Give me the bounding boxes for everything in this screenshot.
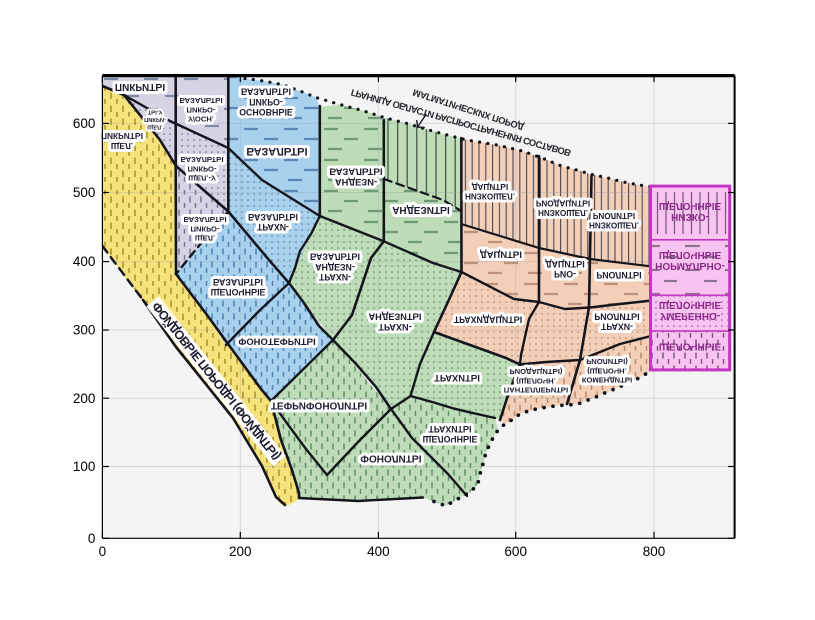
svg-text:ТРАХИДАЦИТЫ: ТРАХИДАЦИТЫ xyxy=(454,314,523,324)
svg-text:ФОНОЛИТЫ: ФОНОЛИТЫ xyxy=(360,453,421,464)
svg-text:600: 600 xyxy=(73,116,96,131)
svg-text:800: 800 xyxy=(643,544,666,559)
svg-text:УМЕРЕННО-ЩЕЛОЧНЫЕ: УМЕРЕННО-ЩЕЛОЧНЫЕ xyxy=(659,299,722,321)
svg-text:НИЗКОЩЕЛ.РИОДАЦИТЫ: НИЗКОЩЕЛ.РИОДАЦИТЫ xyxy=(536,198,590,217)
svg-text:НИЗКОЩЕЛ.РИОЛИТЫ: НИЗКОЩЕЛ.РИОЛИТЫ xyxy=(589,211,639,230)
svg-text:КОМЕНДИТЫ(ЩЕЛОЧН.РИОЛИТЫ): КОМЕНДИТЫ(ЩЕЛОЧН.РИОЛИТЫ) xyxy=(582,357,632,384)
svg-text:200: 200 xyxy=(229,544,252,559)
svg-text:400: 400 xyxy=(367,544,390,559)
svg-text:500: 500 xyxy=(73,185,96,200)
svg-text:ЩЕЛОЧНЫЕБАЗАЛЬТЫ: ЩЕЛОЧНЫЕБАЗАЛЬТЫ xyxy=(211,277,266,297)
svg-text:400: 400 xyxy=(73,254,96,269)
svg-text:АНДЕЗИ-БАЗАЛЬТЫ: АНДЕЗИ-БАЗАЛЬТЫ xyxy=(329,166,382,188)
svg-text:200: 200 xyxy=(73,391,96,406)
svg-text:АНДЕЗИТЫ: АНДЕЗИТЫ xyxy=(392,204,450,215)
svg-text:ФОНОТЕФРИТЫ: ФОНОТЕФРИТЫ xyxy=(238,337,315,348)
svg-text:ЩЕЛОЧНЫЕТРАХИТЫ: ЩЕЛОЧНЫЕТРАХИТЫ xyxy=(423,424,478,444)
svg-text:600: 600 xyxy=(504,544,527,559)
svg-text:ЩЕЛОЧНЫЕ: ЩЕЛОЧНЫЕ xyxy=(659,341,722,352)
svg-text:НОРМАЛЬНО-ЩЕЛОЧНЫЕ: НОРМАЛЬНО-ЩЕЛОЧНЫЕ xyxy=(655,249,725,271)
svg-text:НИЗКОЩЕЛ.ДАЦИТЫ: НИЗКОЩЕЛ.ДАЦИТЫ xyxy=(465,182,515,201)
svg-text:ТЕФРИФОНОЛИТЫ: ТЕФРИФОНОЛИТЫ xyxy=(271,400,368,411)
svg-text:100: 100 xyxy=(73,459,96,474)
svg-text:РИОЛИТЫ: РИОЛИТЫ xyxy=(596,270,642,280)
svg-text:0: 0 xyxy=(99,544,107,559)
svg-text:ПИКРИТЫ: ПИКРИТЫ xyxy=(115,81,165,92)
svg-text:ДАЦИТЫ: ДАЦИТЫ xyxy=(480,250,522,261)
svg-text:0: 0 xyxy=(88,531,96,546)
svg-text:300: 300 xyxy=(73,323,96,338)
svg-text:ТРАХИТЫ: ТРАХИТЫ xyxy=(434,373,480,384)
svg-text:БАЗАЛЬТЫ: БАЗАЛЬТЫ xyxy=(246,145,307,157)
